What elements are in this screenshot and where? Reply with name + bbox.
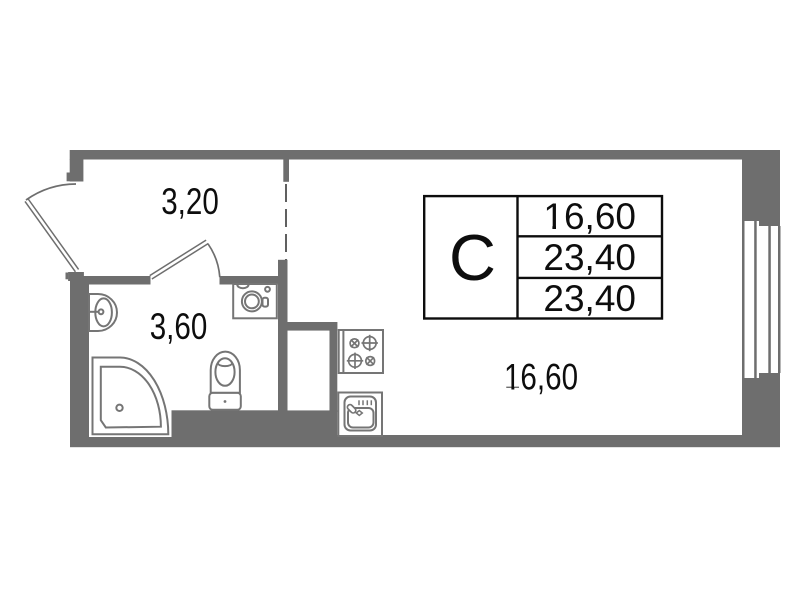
svg-text:16,60: 16,60 bbox=[504, 358, 578, 399]
svg-text:3,20: 3,20 bbox=[161, 182, 219, 223]
svg-text:16,60: 16,60 bbox=[543, 196, 636, 237]
svg-text:23,40: 23,40 bbox=[543, 278, 636, 319]
svg-text:23,40: 23,40 bbox=[543, 237, 636, 278]
svg-text:С: С bbox=[449, 221, 496, 294]
svg-text:3,60: 3,60 bbox=[150, 307, 208, 348]
